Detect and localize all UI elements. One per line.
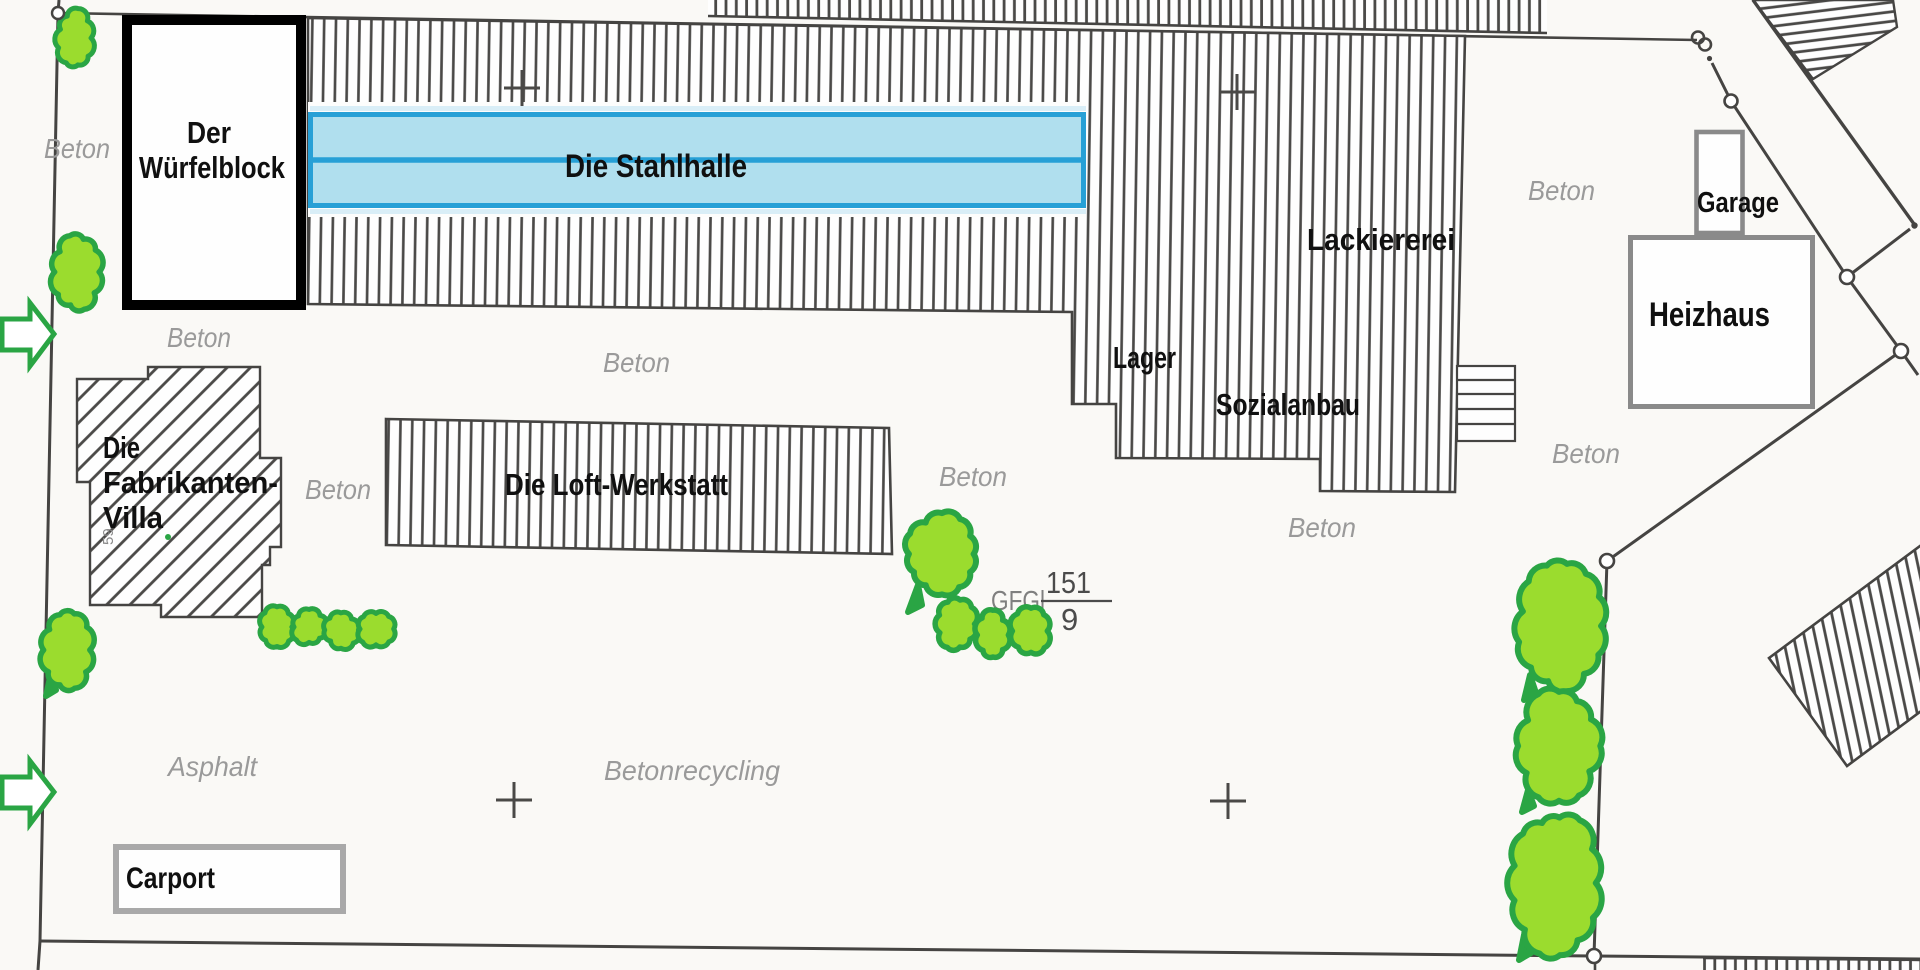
svg-text:Beton: Beton: [1288, 512, 1356, 543]
svg-text:Sozialanbau: Sozialanbau: [1216, 387, 1360, 422]
svg-text:Fabrikanten-: Fabrikanten-: [103, 465, 278, 500]
svg-text:Asphalt: Asphalt: [166, 751, 258, 782]
svg-text:151: 151: [1046, 565, 1091, 600]
svg-text:Die: Die: [103, 430, 140, 465]
svg-text:Heizhaus: Heizhaus: [1649, 296, 1770, 334]
svg-text:Beton: Beton: [167, 322, 231, 353]
svg-text:59: 59: [100, 528, 117, 545]
svg-text:Beton: Beton: [44, 133, 110, 164]
svg-text:Garage: Garage: [1697, 187, 1779, 219]
svg-text:Lager: Lager: [1113, 340, 1176, 375]
svg-text:Beton: Beton: [939, 461, 1007, 492]
svg-text:Die Loft-Werkstatt: Die Loft-Werkstatt: [505, 467, 728, 502]
svg-text:Beton: Beton: [1552, 438, 1620, 469]
svg-text:Würfelblock: Würfelblock: [139, 150, 286, 185]
svg-text:Beton: Beton: [305, 474, 371, 505]
svg-text:Beton: Beton: [1528, 175, 1595, 206]
svg-text:Der: Der: [187, 115, 231, 150]
svg-text:Beton: Beton: [603, 347, 670, 378]
svg-text:9: 9: [1061, 602, 1078, 637]
svg-text:Betonrecycling: Betonrecycling: [604, 755, 780, 786]
svg-text:Die Stahlhalle: Die Stahlhalle: [565, 148, 747, 184]
svg-text:Carport: Carport: [126, 862, 215, 895]
svg-text:Lackiererei: Lackiererei: [1307, 222, 1455, 257]
